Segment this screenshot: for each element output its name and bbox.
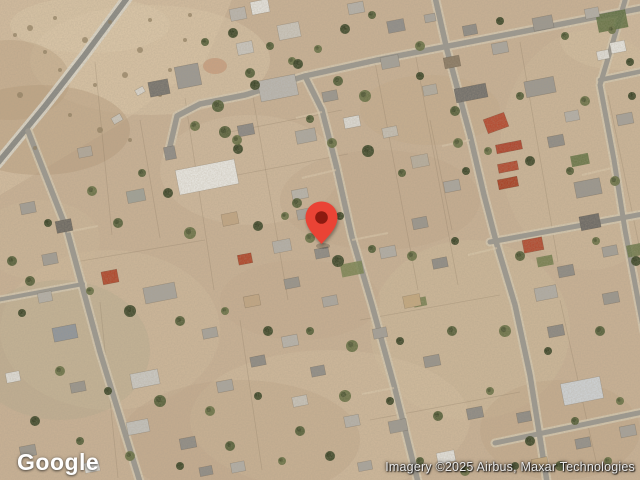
google-logo[interactable]: Google xyxy=(17,449,99,476)
google-maps-satellite-view: Google Imagery ©2025 Airbus, Maxar Techn… xyxy=(0,0,640,480)
pin-inner-circle xyxy=(315,211,328,224)
imagery-attribution: Imagery ©2025 Airbus, Maxar Technologies xyxy=(385,460,635,474)
location-pin-icon[interactable] xyxy=(303,200,340,246)
